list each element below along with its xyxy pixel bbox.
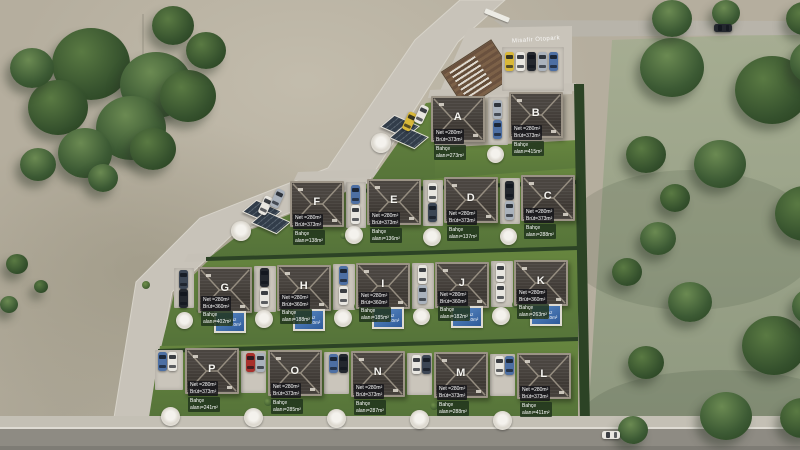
net-area: Net =280m² (440, 292, 466, 299)
garden-area: alanı=138m² (295, 238, 323, 245)
garden-area: alanı=415m² (514, 149, 542, 156)
car (538, 52, 547, 71)
tree (652, 0, 692, 37)
garden-area: alanı=182m² (440, 314, 468, 321)
car (179, 270, 188, 289)
car (493, 120, 502, 139)
chimney (529, 182, 534, 185)
car (496, 283, 505, 302)
garden-area: alanı=137m² (449, 234, 477, 241)
house-letter: M (436, 367, 486, 379)
garden-label: Bahçealanı=287m² (354, 400, 386, 415)
house-letter: B (511, 107, 561, 119)
gross-area: Brüt=373m² (514, 133, 540, 140)
car (260, 268, 269, 287)
house-letter: N (353, 366, 403, 378)
tree (660, 184, 690, 212)
chimney (227, 386, 232, 389)
garden-area: alanı=188m² (282, 317, 310, 324)
curb (0, 427, 800, 429)
garden-label: Bahçealanı=182m² (438, 306, 470, 321)
gross-area: Brüt=373m² (372, 220, 398, 227)
site-plan-render: Misafir Otopark ANet =280m²Brüt=373m²Bah… (0, 0, 800, 450)
chimney (556, 298, 561, 301)
area-label: Net =280m²Brüt=373m² (447, 210, 477, 225)
house-letter: J (437, 277, 487, 289)
area-label: Net =280m²Brüt=360m² (280, 294, 310, 309)
car (505, 356, 514, 375)
car (329, 354, 338, 373)
chimney (206, 274, 211, 277)
chimney (375, 186, 380, 189)
chimney (551, 130, 556, 133)
car (516, 52, 525, 71)
car (339, 266, 348, 285)
gross-area: Brüt=373m² (190, 389, 216, 396)
chimney (364, 270, 369, 273)
net-area: Net =280m² (526, 209, 552, 216)
chimney (193, 355, 198, 358)
net-area: Net =280m² (190, 382, 216, 389)
gross-area: Brüt=360m² (361, 300, 387, 307)
area-label: Net =280m²Brüt=373m² (520, 386, 550, 401)
net-area: Net =280m² (273, 384, 299, 391)
area-label: Net =280m²Brüt=360m² (359, 292, 389, 307)
car (493, 100, 502, 119)
car (339, 286, 348, 305)
house-letter: A (433, 111, 483, 123)
chimney (240, 305, 245, 308)
area-label: Net =280m²Brüt=373m² (524, 208, 554, 223)
area-label: Net =280m²Brüt=360m² (201, 296, 231, 311)
chimney (522, 267, 527, 270)
tree (28, 80, 88, 135)
chimney (525, 360, 530, 363)
tree (742, 316, 800, 375)
car (495, 356, 504, 375)
car (412, 355, 421, 374)
garden-patio (500, 228, 517, 245)
tree (88, 164, 118, 192)
gross-area: Brüt=360m² (203, 304, 229, 311)
chimney (442, 359, 447, 362)
chimney (517, 99, 522, 102)
car (246, 353, 255, 372)
house-letter: G (200, 282, 250, 294)
chimney (439, 103, 444, 106)
net-area: Net =280m² (295, 215, 321, 222)
net-area: Net =280m² (361, 293, 387, 300)
garden-label: Bahçealanı=188m² (280, 309, 312, 324)
car (505, 52, 514, 71)
area-label: Net =280m²Brüt=373m² (370, 212, 400, 227)
tree (160, 70, 216, 122)
net-area: Net =280m² (522, 387, 548, 394)
garden-patio (176, 312, 193, 329)
garden-area: alanı=285m² (273, 407, 301, 414)
tree (20, 148, 56, 181)
car (496, 263, 505, 282)
car (179, 289, 188, 308)
gross-area: Brüt=373m² (436, 137, 462, 144)
tree (152, 6, 194, 45)
gross-area: Brüt=373m² (439, 393, 465, 400)
gross-area: Brüt=360m² (440, 299, 466, 306)
gross-area: Brüt=360m² (519, 297, 545, 304)
car (527, 52, 536, 71)
tree (130, 128, 176, 170)
chimney (298, 188, 303, 191)
car (428, 203, 437, 222)
garden-label: Bahçealanı=273m² (434, 145, 466, 160)
garden-area: alanı=136m² (372, 236, 400, 243)
house-letter: D (446, 192, 496, 204)
tree (6, 254, 28, 274)
net-area: Net =280m² (449, 211, 475, 218)
chimney (285, 272, 290, 275)
net-area: Net =280m² (514, 126, 540, 133)
gross-area: Brüt=373m² (273, 391, 299, 398)
chimney (359, 358, 364, 361)
car (505, 201, 514, 220)
area-label: Net =280m²Brüt=373m² (293, 214, 323, 229)
garden-patio (493, 411, 512, 430)
garden-label: Bahçealanı=136m² (370, 228, 402, 243)
tree (640, 38, 704, 97)
chimney (443, 269, 448, 272)
car (714, 24, 732, 32)
house-letter: P (187, 363, 237, 375)
car (158, 352, 167, 371)
net-area: Net =280m² (372, 213, 398, 220)
chimney (477, 300, 482, 303)
garden-patio (345, 226, 363, 244)
garden-area: alanı=185m² (361, 315, 389, 322)
car (351, 205, 360, 224)
car (260, 288, 269, 307)
garden-label: Bahçealanı=185m² (359, 307, 391, 322)
area-label: Net =280m²Brüt=373m² (437, 385, 467, 400)
tree (712, 0, 740, 26)
garden-patio (327, 409, 346, 428)
garden-patio (231, 221, 251, 241)
garden-area: alanı=288m² (526, 232, 554, 239)
garden-patio (255, 310, 273, 328)
car (339, 354, 348, 373)
road-edge (0, 446, 800, 450)
car (428, 183, 437, 202)
tree (10, 48, 54, 88)
garden-area: alanı=273m² (436, 153, 464, 160)
garden-area: alanı=263m² (519, 312, 547, 319)
area-label: Net =280m²Brüt=373m² (188, 381, 218, 396)
garden-label: Bahçealanı=288m² (524, 224, 556, 239)
gross-area: Brüt=373m² (449, 218, 475, 225)
garden-area: alanı=287m² (356, 408, 384, 415)
tree (0, 296, 18, 313)
garden-label: Bahçealanı=288m² (437, 401, 469, 416)
garden-label: Bahçealanı=263m² (517, 304, 549, 319)
chimney (332, 219, 337, 222)
garden-patio (413, 308, 430, 325)
garden-label: Bahçealanı=138m² (293, 230, 325, 245)
chimney (559, 391, 564, 394)
garden-patio (487, 146, 504, 163)
chimney (276, 357, 281, 360)
pergola (449, 56, 492, 99)
car (549, 52, 558, 71)
gross-area: Brüt=373m² (295, 222, 321, 229)
sidewalk (0, 416, 800, 428)
area-label: Net =280m²Brüt=373m² (354, 384, 384, 399)
tree (640, 222, 676, 255)
tree (668, 282, 712, 322)
house-letter: F (292, 196, 342, 208)
tree (694, 140, 746, 188)
garden-area: alanı=288m² (439, 409, 467, 416)
chimney (310, 388, 315, 391)
tree (618, 416, 648, 444)
chimney (486, 215, 491, 218)
garden-patio (371, 133, 391, 153)
garden-label: Bahçealanı=285m² (271, 399, 303, 414)
garden-area: alanı=241m² (190, 405, 218, 412)
area-label: Net =280m²Brüt=373m² (271, 383, 301, 398)
car (168, 352, 177, 371)
area-label: Net =280m²Brüt=373m² (512, 125, 542, 140)
car (422, 355, 431, 374)
garden-patio (423, 228, 441, 246)
house-letter: O (270, 365, 320, 377)
car (602, 431, 620, 439)
tree (34, 280, 48, 293)
tree (612, 258, 642, 286)
garden-label: Bahçealanı=241m² (188, 397, 220, 412)
gross-area: Brüt=360m² (282, 302, 308, 309)
garden-area: alanı=411m² (522, 410, 550, 417)
car (418, 285, 427, 304)
garden-patio (492, 307, 510, 325)
garden-label: Bahçealanı=411m² (520, 402, 552, 417)
net-area: Net =280m² (519, 290, 545, 297)
area-label: Net =280m²Brüt=360m² (517, 289, 547, 304)
net-area: Net =280m² (356, 385, 382, 392)
chimney (409, 217, 414, 220)
tree (186, 32, 226, 69)
chimney (476, 390, 481, 393)
garden-area: alanı=402m² (203, 319, 231, 326)
tree (700, 392, 752, 440)
chimney (319, 303, 324, 306)
car (505, 181, 514, 200)
tree (628, 346, 664, 379)
net-area: Net =280m² (436, 130, 462, 137)
car (418, 265, 427, 284)
net-area: Net =280m² (282, 295, 308, 302)
chimney (473, 134, 478, 137)
chimney (393, 389, 398, 392)
car (351, 185, 360, 204)
garden-patio (244, 408, 263, 427)
garden-label: Bahçealanı=415m² (512, 141, 544, 156)
garden-patio (410, 410, 429, 429)
area-label: Net =280m²Brüt=373m² (434, 129, 464, 144)
garden-label: Bahçealanı=402m² (201, 311, 233, 326)
house-letter: E (369, 194, 419, 206)
net-area: Net =280m² (203, 297, 229, 304)
garden-patio (161, 407, 180, 426)
house-letter: H (279, 280, 329, 292)
net-area: Net =280m² (439, 386, 465, 393)
garden-label: Bahçealanı=137m² (447, 226, 479, 241)
tree (626, 136, 666, 173)
gross-area: Brüt=373m² (526, 216, 552, 223)
house-letter: C (523, 190, 573, 202)
chimney (452, 184, 457, 187)
house-letter: K (516, 275, 566, 287)
chimney (563, 213, 568, 216)
garden-patio (334, 309, 352, 327)
area-label: Net =280m²Brüt=360m² (438, 291, 468, 306)
gross-area: Brüt=373m² (356, 392, 382, 399)
bush (142, 281, 150, 289)
gross-area: Brüt=373m² (522, 394, 548, 401)
house-letter: L (519, 368, 569, 380)
chimney (398, 301, 403, 304)
car (256, 353, 265, 372)
house-letter: I (358, 278, 408, 290)
